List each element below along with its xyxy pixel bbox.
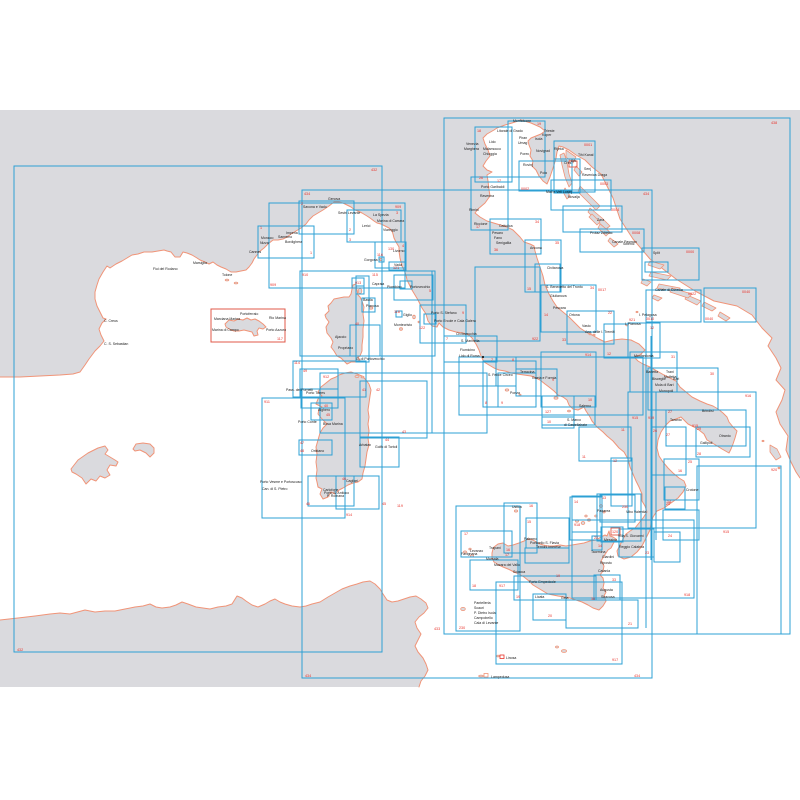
svg-text:Tihi Kanal: Tihi Kanal	[578, 153, 594, 157]
svg-text:1: 1	[260, 226, 262, 230]
svg-text:Gorgona: Gorgona	[364, 258, 378, 262]
svg-text:Porto Torres: Porto Torres	[306, 391, 325, 395]
svg-text:8: 8	[485, 401, 487, 405]
svg-text:Brindisi: Brindisi	[702, 409, 714, 413]
svg-text:10: 10	[588, 398, 592, 402]
svg-text:910: 910	[302, 273, 308, 277]
svg-text:9: 9	[462, 311, 464, 315]
svg-text:118: 118	[394, 310, 400, 314]
svg-text:36: 36	[494, 248, 498, 252]
svg-text:Linosa: Linosa	[506, 656, 516, 660]
svg-text:12: 12	[613, 459, 617, 463]
svg-text:Marsala: Marsala	[486, 557, 499, 561]
svg-text:Giulianova: Giulianova	[550, 294, 567, 298]
svg-text:26: 26	[479, 176, 483, 180]
svg-text:Cannes: Cannes	[249, 250, 261, 254]
svg-text:La Spezia: La Spezia	[373, 213, 389, 217]
svg-text:21: 21	[628, 622, 632, 626]
svg-text:Canale di Curzola: Canale di Curzola	[655, 288, 683, 292]
svg-text:35: 35	[555, 241, 559, 245]
svg-text:Montecristo: Montecristo	[394, 323, 412, 327]
svg-text:Mazara del Vallo: Mazara del Vallo	[494, 563, 520, 567]
svg-text:12: 12	[650, 326, 654, 330]
svg-text:33: 33	[562, 338, 566, 342]
svg-text:19: 19	[537, 122, 541, 126]
svg-text:909: 909	[395, 205, 401, 209]
svg-text:C. S. Sebastian: C. S. Sebastian	[104, 342, 128, 346]
svg-text:Zara: Zara	[597, 218, 604, 222]
svg-text:119: 119	[397, 504, 403, 508]
svg-text:30: 30	[710, 372, 714, 376]
svg-text:Nizza: Nizza	[260, 241, 269, 245]
svg-text:434: 434	[305, 674, 311, 678]
svg-text:18: 18	[472, 584, 476, 588]
svg-text:913: 913	[355, 281, 361, 285]
svg-text:11: 11	[621, 428, 625, 432]
svg-text:33: 33	[612, 578, 616, 582]
svg-text:Rijeka: Rijeka	[554, 147, 564, 151]
svg-text:S. Benedetto del Tronto: S. Benedetto del Tronto	[546, 285, 583, 289]
svg-text:16: 16	[678, 469, 682, 473]
svg-text:27: 27	[668, 410, 672, 414]
svg-text:0002: 0002	[521, 187, 529, 191]
svg-text:Ponza: Ponza	[510, 391, 520, 395]
svg-text:Porto S. Stefano: Porto S. Stefano	[431, 311, 457, 315]
svg-text:22: 22	[608, 311, 612, 315]
svg-text:Taormina: Taormina	[591, 550, 605, 554]
svg-text:Civitavecchia: Civitavecchia	[456, 332, 477, 336]
svg-text:18: 18	[477, 129, 481, 133]
svg-text:Monfredonia: Monfredonia	[634, 354, 654, 358]
svg-text:Propriano: Propriano	[338, 346, 353, 350]
svg-text:P. Romana: P. Romana	[327, 494, 344, 498]
svg-text:919: 919	[648, 416, 654, 420]
svg-text:49: 49	[303, 369, 307, 373]
svg-text:43: 43	[402, 430, 406, 434]
svg-text:Cattolica: Cattolica	[499, 224, 513, 228]
svg-text:45: 45	[326, 413, 330, 417]
svg-text:Viareggio: Viareggio	[383, 228, 398, 232]
svg-text:Golfo di Tortoli: Golfo di Tortoli	[375, 445, 398, 449]
svg-text:434: 434	[304, 192, 310, 196]
svg-text:24: 24	[666, 502, 670, 506]
svg-text:Porto Conte: Porto Conte	[298, 420, 317, 424]
svg-text:Marsiglia: Marsiglia	[193, 261, 207, 265]
svg-text:Mola di Bari: Mola di Bari	[655, 383, 674, 387]
svg-text:44: 44	[385, 438, 389, 442]
svg-text:Ustica: Ustica	[512, 505, 522, 509]
svg-text:Salerno: Salerno	[579, 404, 591, 408]
svg-text:Porto Ercole e Cala Galera: Porto Ercole e Cala Galera	[434, 319, 476, 323]
svg-text:Porto Azzuro: Porto Azzuro	[266, 328, 286, 332]
svg-text:Isola: Isola	[535, 137, 542, 141]
svg-text:Sestri Levante: Sestri Levante	[338, 211, 360, 215]
svg-text:Umag: Umag	[518, 141, 527, 145]
svg-text:Oristano: Oristano	[311, 449, 324, 453]
svg-text:0040: 0040	[742, 290, 750, 294]
svg-text:19: 19	[516, 595, 520, 599]
svg-text:0008: 0008	[632, 231, 640, 235]
svg-text:Scauri: Scauri	[474, 606, 484, 610]
svg-text:17: 17	[497, 179, 501, 183]
svg-text:Civitanova: Civitanova	[547, 266, 563, 270]
svg-text:47: 47	[300, 441, 304, 445]
svg-text:Ravenna: Ravenna	[480, 194, 494, 198]
svg-text:Split: Split	[653, 251, 660, 255]
svg-text:Piombino: Piombino	[387, 285, 402, 289]
svg-text:30: 30	[591, 597, 595, 601]
svg-text:Reggio Calabria: Reggio Calabria	[619, 545, 644, 549]
svg-text:Ortona: Ortona	[569, 313, 580, 317]
svg-text:7: 7	[491, 358, 493, 362]
svg-text:0010: 0010	[646, 317, 654, 321]
svg-text:122: 122	[419, 326, 425, 330]
svg-text:Alghero: Alghero	[318, 408, 330, 412]
svg-text:Vibo Valentia: Vibo Valentia	[626, 510, 646, 514]
svg-text:Prolaz Zdrelac: Prolaz Zdrelac	[590, 231, 613, 235]
svg-text:Monfalcone: Monfalcone	[513, 119, 531, 123]
svg-text:434: 434	[634, 674, 640, 678]
svg-text:Pola: Pola	[540, 171, 547, 175]
svg-text:2: 2	[349, 228, 351, 232]
svg-text:I. Pelagosa: I. Pelagosa	[639, 313, 657, 317]
svg-text:434: 434	[643, 192, 649, 196]
svg-text:5: 5	[429, 289, 431, 293]
svg-text:916: 916	[745, 394, 751, 398]
svg-text:917: 917	[612, 658, 618, 662]
svg-text:22: 22	[594, 536, 598, 540]
svg-text:0003: 0003	[600, 182, 608, 186]
svg-text:Novalja: Novalja	[568, 195, 580, 199]
svg-text:Ravenica Draga: Ravenica Draga	[582, 173, 607, 177]
svg-text:Trani: Trani	[666, 370, 674, 374]
svg-text:Arbatax: Arbatax	[359, 443, 371, 447]
svg-text:Messina: Messina	[604, 538, 617, 542]
svg-text:914: 914	[585, 353, 591, 357]
svg-text:Pianosa: Pianosa	[366, 304, 379, 308]
svg-text:16: 16	[529, 504, 533, 508]
svg-text:41: 41	[362, 388, 366, 392]
svg-text:Levanzo: Levanzo	[470, 549, 483, 553]
svg-text:Pescara: Pescara	[553, 306, 566, 310]
svg-text:Lido di Roma: Lido di Roma	[459, 354, 480, 358]
svg-text:17: 17	[505, 553, 509, 557]
svg-text:915: 915	[723, 530, 729, 534]
svg-text:48: 48	[300, 449, 304, 453]
svg-text:Cala di Levante: Cala di Levante	[474, 621, 498, 625]
svg-text:Sibenic: Sibenic	[623, 242, 635, 246]
svg-text:16: 16	[506, 548, 510, 552]
svg-text:8: 8	[512, 358, 514, 362]
svg-text:14: 14	[544, 313, 548, 317]
svg-text:29: 29	[697, 427, 701, 431]
svg-text:Marciana Marina: Marciana Marina	[214, 317, 240, 321]
svg-text:28: 28	[697, 452, 701, 456]
svg-text:Genova: Genova	[328, 197, 340, 201]
svg-text:Rovinj: Rovinj	[523, 163, 533, 167]
svg-text:Bordighera: Bordighera	[285, 240, 302, 244]
svg-text:230: 230	[622, 505, 628, 509]
svg-text:20: 20	[548, 614, 552, 618]
svg-text:Gela: Gela	[561, 596, 568, 600]
svg-text:Anc. delle I. Tremiti: Anc. delle I. Tremiti	[585, 330, 615, 334]
svg-text:Novigrad: Novigrad	[536, 149, 550, 153]
svg-text:Lerici: Lerici	[362, 224, 371, 228]
svg-text:438: 438	[771, 121, 777, 125]
svg-text:Monaco: Monaco	[261, 236, 274, 240]
svg-text:Bari: Bari	[673, 377, 679, 381]
svg-text:25: 25	[688, 460, 692, 464]
svg-text:Pesaro: Pesaro	[492, 231, 503, 235]
svg-text:Portoferraio: Portoferraio	[240, 312, 258, 316]
svg-text:Porec: Porec	[520, 152, 529, 156]
svg-text:230: 230	[459, 626, 465, 630]
svg-text:Cagliari: Cagliari	[346, 479, 358, 483]
svg-text:Capraia: Capraia	[372, 282, 384, 286]
svg-text:0040: 0040	[705, 317, 713, 321]
svg-text:Can. di S. Pietro: Can. di S. Pietro	[262, 487, 288, 491]
svg-text:15: 15	[527, 520, 531, 524]
svg-text:Fiumicino: Fiumicino	[460, 348, 475, 352]
svg-text:912: 912	[323, 375, 329, 379]
svg-text:0004: 0004	[611, 208, 619, 212]
svg-text:Gallipoli: Gallipoli	[700, 441, 713, 445]
svg-text:Tolone: Tolone	[222, 273, 232, 277]
svg-text:0017: 0017	[598, 288, 606, 292]
svg-text:19: 19	[556, 574, 560, 578]
svg-text:Taranto: Taranto	[670, 418, 682, 422]
svg-text:Fiui del Rodano: Fiui del Rodano	[153, 267, 178, 271]
svg-text:P. Dietro Isola: P. Dietro Isola	[474, 611, 496, 615]
svg-text:G. di Portovecchio: G. di Portovecchio	[356, 357, 385, 361]
svg-text:Sanremo: Sanremo	[278, 235, 292, 239]
svg-text:S. Marco: S. Marco	[567, 418, 581, 422]
svg-text:Savona e Vado: Savona e Vado	[303, 205, 327, 209]
svg-text:3: 3	[349, 238, 351, 242]
svg-text:Termini Imerese: Termini Imerese	[536, 545, 561, 549]
svg-text:27: 27	[666, 433, 670, 437]
svg-text:Bastia: Bastia	[363, 298, 373, 302]
svg-text:4: 4	[402, 244, 404, 248]
svg-text:Rio Marina: Rio Marina	[269, 316, 286, 320]
svg-text:31: 31	[671, 355, 675, 359]
svg-text:Riccione: Riccione	[474, 222, 487, 226]
svg-text:Crotone: Crotone	[686, 488, 699, 492]
svg-text:Gaeta e Formia: Gaeta e Formia	[532, 376, 556, 380]
svg-text:Barletta: Barletta	[646, 370, 658, 374]
svg-text:Trapani: Trapani	[489, 546, 501, 550]
svg-text:Pantelleria: Pantelleria	[474, 601, 491, 605]
svg-text:40: 40	[355, 322, 359, 326]
svg-text:7: 7	[446, 337, 448, 341]
svg-text:Monopoli: Monopoli	[659, 389, 673, 393]
svg-text:26: 26	[653, 429, 657, 433]
svg-text:13: 13	[602, 496, 606, 500]
svg-text:Koper: Koper	[542, 133, 552, 137]
svg-text:Senj: Senj	[584, 167, 591, 171]
svg-text:Lido: Lido	[489, 140, 496, 144]
svg-text:Villa S. Giovanni: Villa S. Giovanni	[618, 534, 644, 538]
svg-text:Porto Garibaldi: Porto Garibaldi	[481, 185, 505, 189]
svg-text:14: 14	[574, 500, 578, 504]
svg-text:0001: 0001	[584, 143, 592, 147]
svg-text:Riposto: Riposto	[600, 561, 612, 565]
svg-text:17: 17	[464, 532, 468, 536]
svg-text:918: 918	[574, 523, 580, 527]
svg-text:Otranto: Otranto	[719, 434, 731, 438]
svg-text:S. Marinella: S. Marinella	[461, 339, 480, 343]
svg-text:Sciacca: Sciacca	[513, 570, 525, 574]
svg-text:Panarea: Panarea	[597, 509, 610, 513]
svg-text:0000: 0000	[686, 250, 694, 254]
svg-text:922: 922	[532, 337, 538, 341]
svg-text:Chioggia: Chioggia	[483, 152, 497, 156]
svg-text:S. Felice Circeo: S. Felice Circeo	[488, 373, 513, 377]
svg-text:Vada: Vada	[394, 263, 402, 267]
svg-text:15: 15	[527, 287, 531, 291]
svg-text:Mali e Veli Losinj: Mali e Veli Losinj	[546, 190, 572, 194]
svg-text:Giglio: Giglio	[403, 313, 412, 317]
svg-text:Giardini: Giardini	[602, 555, 614, 559]
svg-text:10: 10	[547, 420, 551, 424]
svg-text:918: 918	[684, 593, 690, 597]
svg-text:432: 432	[371, 168, 377, 172]
svg-text:Venezia: Venezia	[466, 142, 479, 146]
svg-text:Augusta: Augusta	[600, 588, 613, 592]
svg-text:di Castellabate: di Castellabate	[564, 423, 587, 427]
svg-text:117: 117	[277, 337, 283, 341]
svg-text:Lampedusa: Lampedusa	[491, 675, 509, 679]
svg-text:Litorale di Grado: Litorale di Grado	[497, 129, 523, 133]
svg-text:23: 23	[645, 551, 649, 555]
svg-text:9: 9	[501, 401, 503, 405]
svg-text:11: 11	[582, 455, 586, 459]
svg-text:Catania: Catania	[598, 569, 610, 573]
svg-text:Porto Empedocle: Porto Empedocle	[529, 580, 556, 584]
svg-text:24: 24	[668, 534, 672, 538]
svg-text:Portovecchio: Portovecchio	[410, 285, 430, 289]
svg-text:46: 46	[306, 502, 310, 506]
svg-text:127: 127	[545, 410, 551, 414]
svg-text:Senigallia: Senigallia	[496, 241, 511, 245]
svg-text:45: 45	[382, 502, 386, 506]
svg-text:1: 1	[310, 251, 312, 255]
svg-text:Malamocco: Malamocco	[483, 147, 501, 151]
svg-text:I. Pianosa: I. Pianosa	[625, 322, 641, 326]
svg-text:911: 911	[264, 400, 270, 404]
svg-text:Campobello: Campobello	[474, 616, 493, 620]
svg-text:Ajaccio: Ajaccio	[335, 335, 346, 339]
svg-text:Piran: Piran	[519, 136, 527, 140]
svg-text:C. Creus: C. Creus	[104, 319, 118, 323]
svg-text:3: 3	[396, 211, 398, 215]
svg-text:Fano: Fano	[494, 236, 502, 240]
svg-text:115: 115	[372, 273, 378, 277]
svg-text:Rimini: Rimini	[469, 208, 479, 212]
svg-text:Terracina: Terracina	[520, 370, 534, 374]
svg-text:Bosa Marina: Bosa Marina	[323, 422, 343, 426]
svg-text:433: 433	[434, 627, 440, 631]
svg-text:Marghera: Marghera	[464, 147, 479, 151]
svg-text:12: 12	[607, 352, 611, 356]
svg-text:Krk: Krk	[571, 159, 577, 163]
svg-text:114: 114	[294, 361, 300, 365]
svg-text:Ancona: Ancona	[530, 246, 542, 250]
svg-text:Siracusa: Siracusa	[601, 595, 615, 599]
svg-text:Vasto: Vasto	[582, 324, 591, 328]
svg-text:Livorno: Livorno	[393, 249, 405, 253]
svg-text:Marina di Carrara: Marina di Carrara	[377, 219, 404, 223]
svg-text:909: 909	[270, 283, 276, 287]
svg-text:432: 432	[17, 648, 23, 652]
svg-text:0022: 0022	[688, 292, 696, 296]
svg-text:920: 920	[771, 468, 777, 472]
svg-text:42: 42	[376, 388, 380, 392]
svg-text:34: 34	[535, 220, 539, 224]
svg-text:116: 116	[377, 253, 383, 257]
svg-text:Porto Vesme e Portoscuso: Porto Vesme e Portoscuso	[260, 480, 301, 484]
svg-text:14: 14	[598, 544, 602, 548]
svg-text:Marina di Campo: Marina di Campo	[212, 328, 239, 332]
svg-text:914: 914	[346, 513, 352, 517]
svg-text:915: 915	[632, 416, 638, 420]
svg-text:917: 917	[499, 584, 505, 588]
svg-text:34: 34	[590, 286, 594, 290]
svg-text:Licata: Licata	[535, 595, 544, 599]
